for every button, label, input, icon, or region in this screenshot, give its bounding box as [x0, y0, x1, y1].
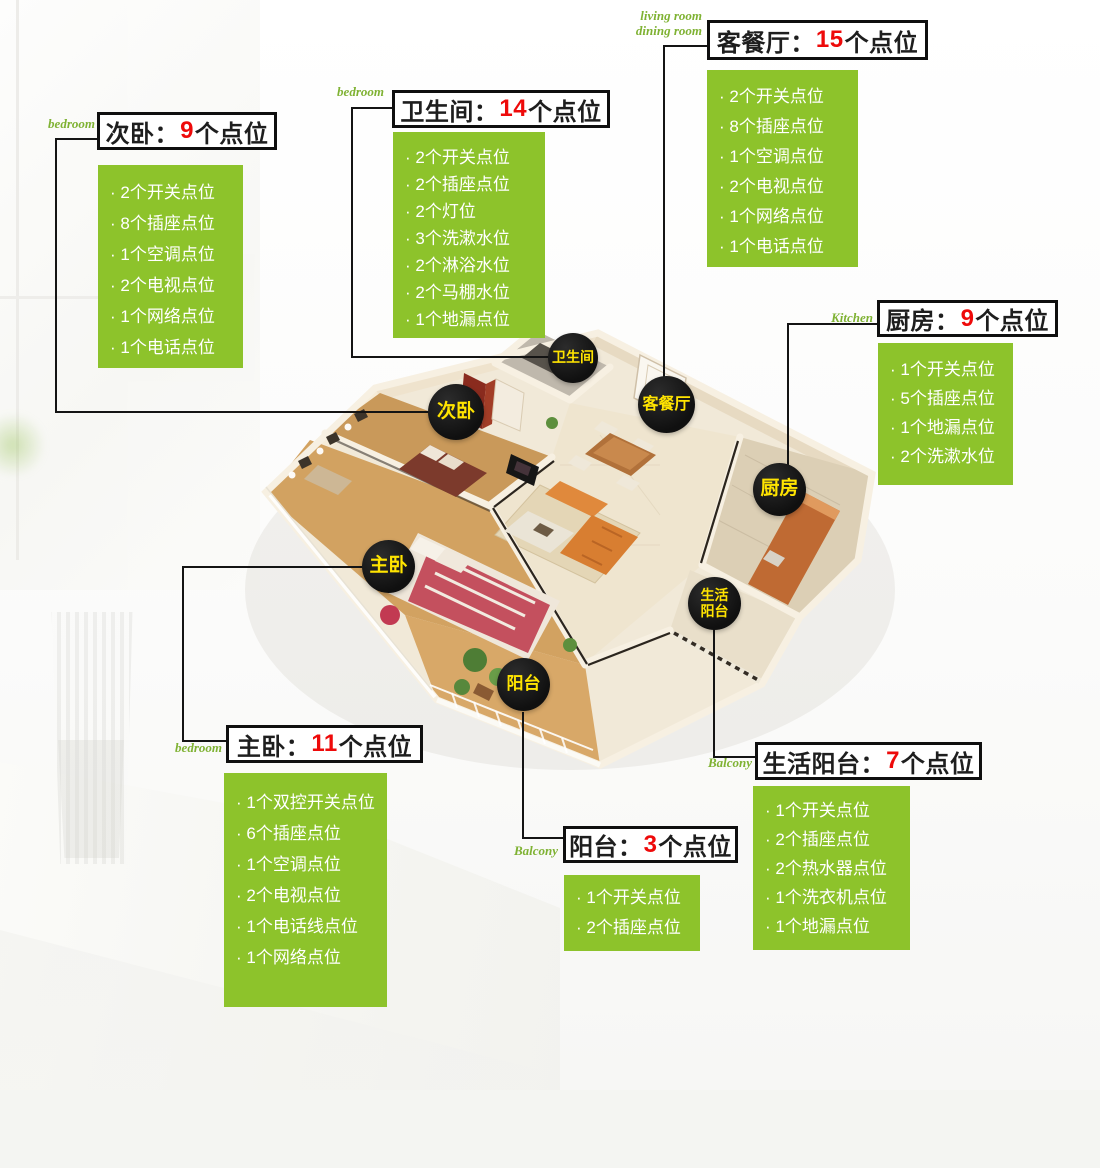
- tag-bathroom: bedroom: [312, 84, 384, 99]
- list-item: · 1个空调点位: [719, 142, 852, 172]
- title-count: 7: [885, 747, 901, 775]
- title-bathroom: 卫生间：14个点位: [392, 90, 610, 128]
- list-balcony: · 1个开关点位 · 2个插座点位: [564, 875, 700, 951]
- tag-kitchen: Kitchen: [800, 310, 873, 325]
- list-item: · 2个电视点位: [110, 270, 237, 301]
- tag-master-bedroom: bedroom: [150, 740, 222, 755]
- background-bottom-strip: [0, 1090, 1100, 1168]
- list-item: · 5个插座点位: [890, 384, 1007, 413]
- title-secondary-bedroom: 次卧：9个点位: [97, 112, 277, 150]
- title-count: 15: [815, 26, 845, 54]
- list-item: · 1个电话点位: [719, 232, 852, 262]
- room-marker-living-dining: 客餐厅: [638, 376, 695, 433]
- list-item: · 2个开关点位: [719, 82, 852, 112]
- list-item: · 2个开关点位: [405, 144, 539, 171]
- title-count: 3: [643, 831, 659, 859]
- list-kitchen: · 1个开关点位 · 5个插座点位 · 1个地漏点位 · 2个洗漱水位: [878, 343, 1013, 485]
- list-item: · 2个电视点位: [719, 172, 852, 202]
- room-marker-utility-balcony: 生活 阳台: [688, 577, 741, 630]
- infographic-canvas: 卫生间 次卧 客餐厅 厨房 主卧 生活 阳台 阳台 bedroom 次卧：9个点…: [0, 0, 1100, 1168]
- title-room-name: 卫生间：: [400, 92, 498, 127]
- list-item: · 1个开关点位: [765, 796, 904, 825]
- title-room-name: 客餐厅：: [717, 23, 815, 58]
- list-item: · 2个淋浴水位: [405, 252, 539, 279]
- list-item: · 1个双控开关点位: [236, 787, 381, 818]
- room-marker-label: 客餐厅: [642, 396, 690, 414]
- title-suffix: 个点位: [975, 301, 1049, 336]
- title-count: 11: [310, 730, 338, 758]
- room-marker-kitchen: 厨房: [753, 463, 806, 516]
- title-kitchen: 厨房：9个点位: [877, 300, 1058, 337]
- list-item: · 1个开关点位: [890, 355, 1007, 384]
- list-item: · 1个电话点位: [110, 332, 237, 363]
- room-marker-label: 主卧: [369, 556, 407, 577]
- list-item: · 2个插座点位: [576, 913, 694, 943]
- title-room-name: 生活阳台：: [763, 744, 886, 779]
- list-item: · 2个电视点位: [236, 880, 381, 911]
- list-item: · 2个洗漱水位: [890, 442, 1007, 471]
- room-marker-bathroom: 卫生间: [548, 333, 598, 383]
- room-marker-label: 阳台: [701, 604, 729, 619]
- room-marker-balcony: 阳台: [497, 658, 550, 711]
- tag-line: dining room: [600, 23, 702, 38]
- tag-balcony: Balcony: [480, 843, 558, 858]
- title-living-dining: 客餐厅：15个点位: [707, 20, 928, 60]
- title-count: 14: [498, 95, 528, 123]
- list-secondary-bedroom: · 2个开关点位 · 8个插座点位 · 1个空调点位 · 2个电视点位 · 1个…: [98, 165, 243, 368]
- list-item: · 2个马棚水位: [405, 279, 539, 306]
- list-item: · 3个洗漱水位: [405, 225, 539, 252]
- floorplan-image: [240, 315, 900, 785]
- tag-living-dining: living room dining room: [600, 8, 702, 38]
- list-living-dining: · 2个开关点位 · 8个插座点位 · 1个空调点位 · 2个电视点位 · 1个…: [707, 70, 858, 267]
- title-room-name: 阳台：: [569, 827, 643, 862]
- list-item: · 6个插座点位: [236, 818, 381, 849]
- room-marker-label: 卫生间: [552, 350, 594, 365]
- list-item: · 2个灯位: [405, 198, 539, 225]
- list-item: · 1个洗衣机点位: [765, 883, 904, 912]
- title-master-bedroom: 主卧：11个点位: [226, 725, 423, 763]
- title-suffix: 个点位: [901, 744, 975, 779]
- room-marker-master-bedroom: 主卧: [362, 540, 415, 593]
- list-item: · 1个开关点位: [576, 883, 694, 913]
- room-marker-label: 生活: [701, 588, 729, 603]
- title-balcony: 阳台：3个点位: [563, 826, 738, 863]
- title-suffix: 个点位: [528, 92, 602, 127]
- list-item: · 1个空调点位: [110, 239, 237, 270]
- list-master-bedroom: · 1个双控开关点位 · 6个插座点位 · 1个空调点位 · 2个电视点位 · …: [224, 773, 387, 1007]
- list-item: · 1个地漏点位: [765, 912, 904, 941]
- list-item: · 2个热水器点位: [765, 854, 904, 883]
- list-item: · 2个开关点位: [110, 177, 237, 208]
- list-item: · 1个网络点位: [719, 202, 852, 232]
- room-marker-label: 厨房: [760, 479, 798, 500]
- list-item: · 1个地漏点位: [405, 306, 539, 333]
- window-frame-line: [16, 0, 19, 560]
- tag-utility-balcony: Balcony: [674, 755, 752, 770]
- list-item: · 2个插座点位: [405, 171, 539, 198]
- tag-line: living room: [600, 8, 702, 23]
- title-count: 9: [960, 305, 976, 333]
- list-item: · 1个网络点位: [110, 301, 237, 332]
- list-item: · 2个插座点位: [765, 825, 904, 854]
- title-room-name: 次卧：: [106, 114, 180, 149]
- list-bathroom: · 2个开关点位 · 2个插座点位 · 2个灯位 · 3个洗漱水位 · 2个淋浴…: [393, 132, 545, 338]
- list-item: · 1个地漏点位: [890, 413, 1007, 442]
- title-suffix: 个点位: [339, 727, 413, 762]
- room-marker-secondary-bedroom: 次卧: [428, 384, 484, 440]
- list-item: · 1个电话线点位: [236, 911, 381, 942]
- title-count: 9: [179, 117, 195, 145]
- room-marker-label: 阳台: [507, 675, 541, 694]
- title-suffix: 个点位: [658, 827, 732, 862]
- tag-secondary-bedroom: bedroom: [20, 116, 95, 131]
- list-item: · 1个空调点位: [236, 849, 381, 880]
- list-item: · 8个插座点位: [719, 112, 852, 142]
- room-marker-label: 次卧: [437, 402, 475, 423]
- title-room-name: 厨房：: [886, 301, 960, 336]
- list-item: · 8个插座点位: [110, 208, 237, 239]
- background-glass-liquid: [56, 740, 126, 858]
- title-suffix: 个点位: [845, 23, 919, 58]
- title-utility-balcony: 生活阳台：7个点位: [755, 742, 982, 780]
- title-suffix: 个点位: [195, 114, 269, 149]
- title-room-name: 主卧：: [237, 727, 311, 762]
- list-utility-balcony: · 1个开关点位 · 2个插座点位 · 2个热水器点位 · 1个洗衣机点位 · …: [753, 786, 910, 950]
- list-item: · 1个网络点位: [236, 942, 381, 973]
